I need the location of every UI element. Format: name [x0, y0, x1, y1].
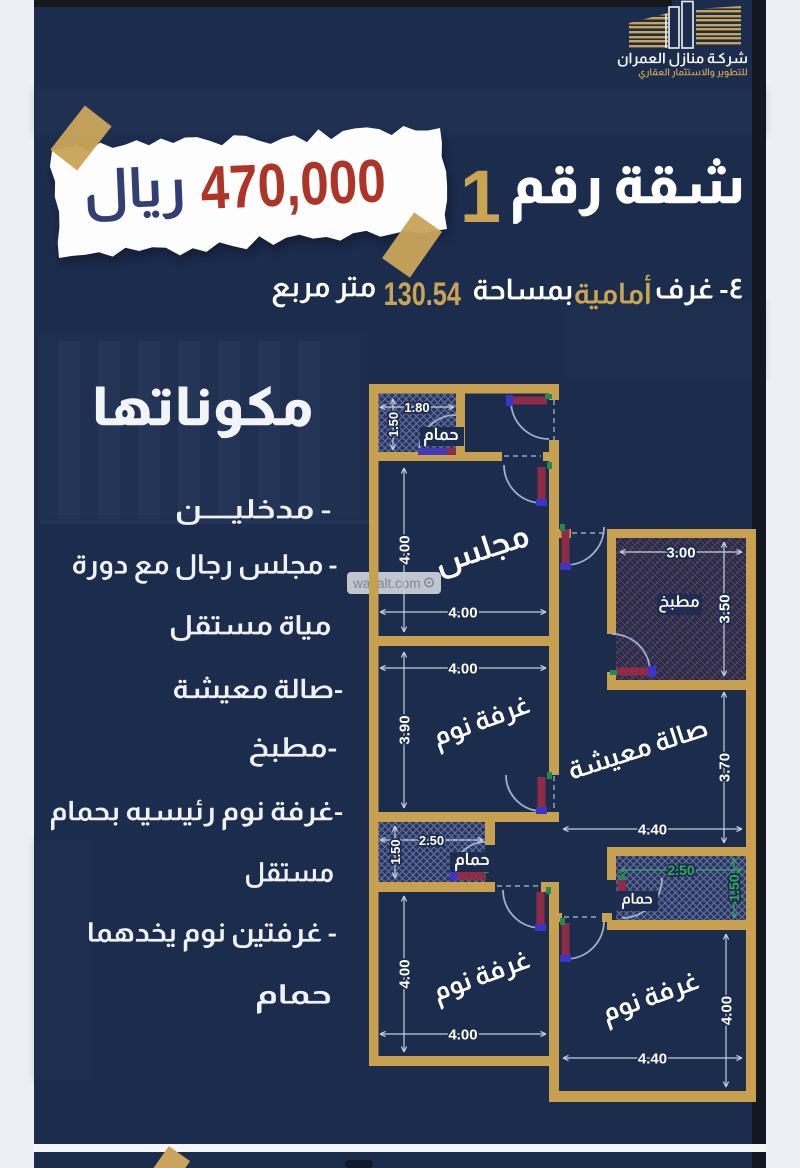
svg-text:3.90: 3.90	[396, 715, 413, 744]
svg-text:4.00: 4.00	[448, 1026, 477, 1043]
svg-text:3.50: 3.50	[716, 594, 733, 623]
svg-text:4.00: 4.00	[718, 996, 735, 1025]
svg-text:1.50: 1.50	[388, 839, 403, 864]
svg-text:1.80: 1.80	[404, 400, 429, 415]
svg-text:470,000: 470,000	[199, 146, 387, 222]
svg-text:130.54: 130.54	[384, 277, 461, 313]
svg-text:1.50: 1.50	[386, 412, 401, 437]
svg-text:4.00: 4.00	[448, 660, 477, 677]
svg-text:4.00: 4.00	[396, 959, 413, 988]
svg-text:3.00: 3.00	[666, 544, 695, 561]
svg-text:4.00: 4.00	[448, 604, 477, 621]
svg-text:4.40: 4.40	[638, 821, 667, 838]
svg-text:wasalt.com: wasalt.com	[352, 576, 421, 591]
svg-text:2.50: 2.50	[419, 833, 444, 848]
svg-text:2.50: 2.50	[667, 862, 694, 878]
svg-text:3.70: 3.70	[716, 753, 733, 782]
svg-text:4.00: 4.00	[396, 535, 413, 564]
svg-text:1: 1	[460, 155, 501, 238]
svg-text:4.40: 4.40	[638, 1050, 667, 1067]
svg-text:1.50: 1.50	[726, 874, 742, 901]
